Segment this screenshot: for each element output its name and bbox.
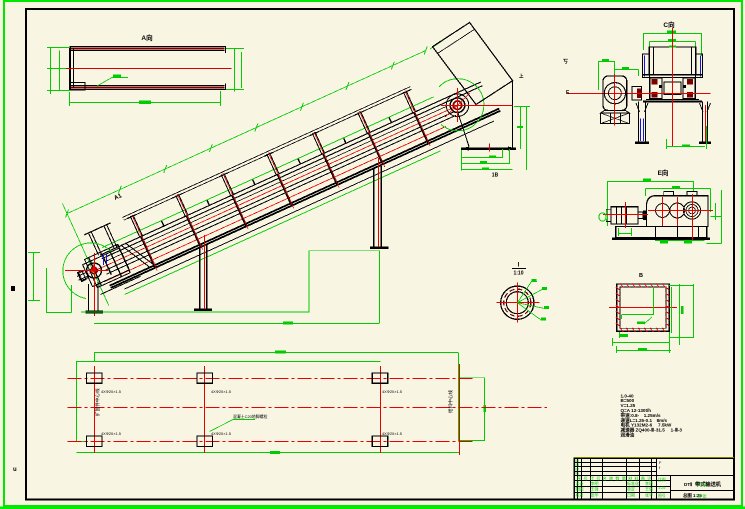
svg-text:u: u — [13, 467, 17, 473]
svg-text:图号: 图号 — [658, 493, 666, 498]
svg-text:丂: 丂 — [563, 58, 568, 65]
svg-text:A向: A向 — [141, 33, 153, 42]
svg-text:01: 01 — [575, 472, 579, 476]
svg-text:混凝土C20地脚螺栓: 混凝土C20地脚螺栓 — [233, 414, 267, 419]
svg-text:4XΦ20×1.5: 4XΦ20×1.5 — [211, 389, 231, 394]
svg-text:标准化: 标准化 — [627, 480, 639, 486]
svg-text:C向: C向 — [663, 20, 675, 29]
svg-text:李明: 李明 — [645, 480, 653, 486]
svg-text:制图: 制图 — [576, 486, 584, 492]
svg-text:给料中心线: 给料中心线 — [447, 390, 454, 413]
svg-text:B: B — [639, 273, 643, 279]
svg-text:DTⅡ: DTⅡ — [684, 481, 693, 487]
svg-text:润滑油: 润滑油 — [621, 432, 635, 439]
svg-text:比例: 比例 — [658, 477, 666, 482]
svg-text:E向: E向 — [658, 168, 669, 177]
svg-text:第 张: 第 张 — [697, 493, 707, 500]
svg-text:上: 上 — [519, 73, 524, 80]
svg-text:李明: 李明 — [591, 480, 599, 486]
svg-text:共 张: 共 张 — [697, 481, 707, 488]
svg-text:扩固件中心线: 扩固件中心线 — [94, 388, 101, 416]
svg-text:王强: 王强 — [591, 487, 599, 492]
svg-text:4XΦ20×1.5: 4XΦ20×1.5 — [211, 431, 231, 436]
svg-text:1B: 1B — [492, 173, 499, 179]
svg-text:张华: 张华 — [591, 492, 599, 498]
svg-text:审定: 审定 — [627, 486, 635, 492]
svg-text:张华: 张华 — [645, 492, 653, 498]
svg-text:1:25: 1:25 — [658, 486, 665, 490]
svg-text:日期: 日期 — [627, 492, 635, 498]
svg-text:王强: 王强 — [645, 487, 653, 492]
svg-text:设计: 设计 — [576, 480, 584, 486]
svg-text:校对: 校对 — [576, 492, 584, 498]
svg-text:4XΦ20×1.5: 4XΦ20×1.5 — [101, 431, 121, 436]
svg-text:4XΦ20×1.5: 4XΦ20×1.5 — [101, 389, 121, 394]
svg-text:4XΦ20×1.5: 4XΦ20×1.5 — [382, 431, 402, 436]
svg-text:1:10: 1:10 — [513, 271, 523, 277]
svg-text:序号代号名称数量材料备注: 序号代号名称数量材料备注 — [577, 475, 654, 482]
svg-text:4XΦ20×1.5: 4XΦ20×1.5 — [382, 389, 402, 394]
